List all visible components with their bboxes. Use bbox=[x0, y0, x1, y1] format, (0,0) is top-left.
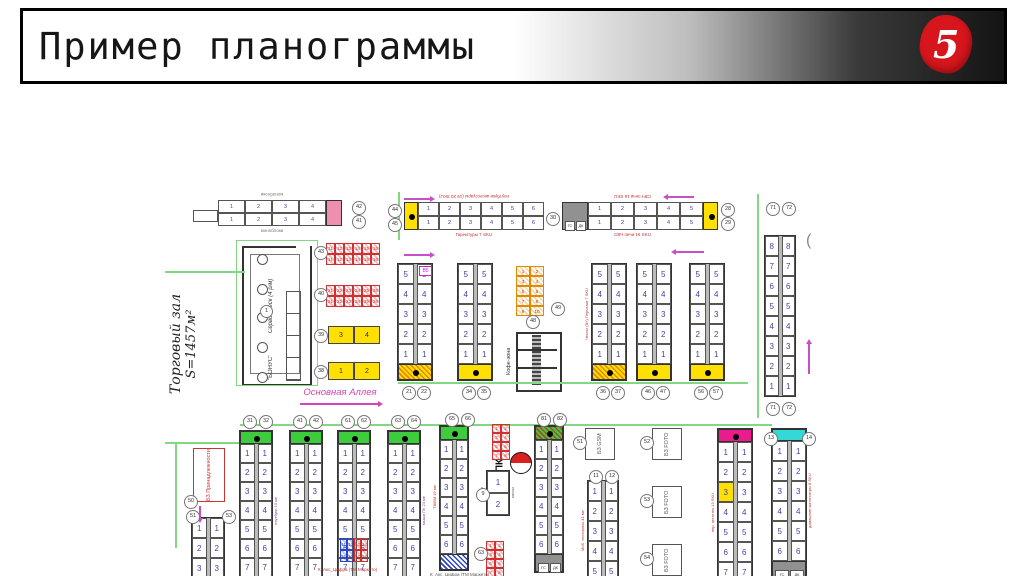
shelf-cell: 5 bbox=[718, 522, 734, 542]
section-badge: 36 bbox=[596, 386, 610, 400]
shelf-cell: 3 bbox=[535, 478, 548, 497]
shelf-cell: 2 bbox=[791, 461, 807, 481]
gondola-unit: 1122334455 bbox=[588, 481, 618, 576]
section-badge: 32 bbox=[259, 415, 273, 429]
shelf-cell: 6 bbox=[240, 539, 255, 558]
gondola-unit: 112233445566 bbox=[440, 426, 468, 570]
section-badge: 56 bbox=[694, 386, 708, 400]
shelf-cell: 6 bbox=[737, 542, 753, 562]
promo-cell: 13 bbox=[354, 538, 361, 550]
promo-cell: 3 bbox=[492, 433, 501, 442]
section-badge: 63 bbox=[391, 415, 405, 429]
shelf-cell: 1 bbox=[782, 376, 796, 396]
floor-name: Торговый зал bbox=[168, 284, 184, 404]
section-badge: 37 bbox=[611, 386, 625, 400]
shelf-cell: 4 bbox=[605, 541, 619, 561]
shelf-cell: 3 bbox=[406, 482, 421, 501]
flow-arrow bbox=[663, 194, 668, 200]
shelf-cell: 5 bbox=[308, 520, 323, 539]
promo-pallet-grid: 212223242526212223242526 bbox=[326, 285, 380, 307]
promo-cell: 1 bbox=[486, 541, 495, 550]
column-dot bbox=[705, 370, 711, 376]
boundary-line bbox=[398, 382, 748, 384]
section-badge: 54 bbox=[640, 552, 654, 566]
shelf-cell: 3 bbox=[272, 200, 299, 213]
flow-arrow bbox=[430, 196, 435, 202]
gsdk-cell: ДК bbox=[550, 563, 561, 573]
shelf-cell: 4 bbox=[709, 284, 725, 304]
gondola-spine bbox=[706, 264, 709, 364]
shelf-cell: 4 bbox=[290, 501, 305, 520]
shelf-cell: 6 bbox=[308, 539, 323, 558]
promo-table-cell: 1 bbox=[328, 362, 354, 380]
section-badge: 71 bbox=[766, 402, 780, 416]
end-block bbox=[388, 431, 420, 444]
shelf-cell: 3 bbox=[272, 213, 299, 226]
shelf-cell: 2 bbox=[535, 459, 548, 478]
annotation-text: ноутбуки 10 ме bbox=[273, 444, 280, 576]
flow-arrow bbox=[404, 198, 430, 200]
flow-arrow bbox=[430, 252, 435, 258]
section-badge: 28 bbox=[721, 203, 735, 217]
promo-cell: 14 bbox=[353, 243, 362, 254]
shelf-cell: 4 bbox=[657, 216, 680, 230]
gondola-unit: 5544332211B5 bbox=[398, 264, 432, 380]
shelf-cell: 2 bbox=[656, 324, 672, 344]
shelf-cell: 5 bbox=[240, 520, 255, 539]
shelf-cell: 2 bbox=[240, 463, 255, 482]
promo-cell: 24 bbox=[353, 285, 362, 296]
shelf-cell: 3 bbox=[634, 216, 657, 230]
promo-table-cell: 2 bbox=[354, 362, 380, 380]
flow-arrow bbox=[668, 196, 694, 198]
shelf-cell: 2 bbox=[772, 461, 788, 481]
section-badge: 43 bbox=[314, 246, 328, 260]
shelf-cell: 3 bbox=[791, 481, 807, 501]
annotation-text: ( bbox=[806, 232, 811, 250]
shelf-cell: 3 bbox=[611, 304, 627, 324]
shelf-cell: 3 bbox=[460, 216, 481, 230]
shelf-cell: 4 bbox=[611, 284, 627, 304]
shelf-cell: 7 bbox=[782, 256, 796, 276]
gondola-spine bbox=[305, 444, 308, 576]
gondola-unit: 112233 bbox=[192, 518, 224, 576]
shelf-cell: 7 bbox=[388, 558, 403, 576]
shelf-cell: 2 bbox=[258, 463, 273, 482]
section-badge: 35 bbox=[477, 386, 491, 400]
section-badge: 41 bbox=[352, 215, 366, 229]
flow-arrow bbox=[300, 403, 378, 405]
main-alley-label: Основная Аллея bbox=[298, 387, 382, 398]
section-badge: 42 bbox=[309, 415, 323, 429]
shelf-cell: 3 bbox=[477, 304, 493, 324]
annotation-text: мыши ПК 24 ме bbox=[421, 444, 428, 576]
outline-rect bbox=[236, 240, 318, 386]
column-dot bbox=[547, 431, 553, 437]
planogram-canvas: Торговый зал S=1457м² Основная Аллея Сер… bbox=[0, 86, 1024, 576]
shelf-cell: 5 bbox=[290, 520, 305, 539]
shelf-cell: 5 bbox=[605, 561, 619, 576]
gondola-unit: 11223344556677 bbox=[290, 431, 322, 576]
section-badge: 42 bbox=[352, 201, 366, 215]
shelf-cell: 1 bbox=[240, 444, 255, 463]
column-dot bbox=[402, 436, 408, 442]
gondola-spine bbox=[207, 518, 210, 576]
shelf-cell: 1 bbox=[690, 344, 706, 364]
shelf-cell: 2 bbox=[487, 493, 509, 515]
shelf-cell: 1 bbox=[456, 440, 469, 459]
promo-cell: 4 bbox=[530, 276, 544, 286]
boundary-line bbox=[165, 271, 245, 273]
b3-box: Б3 GSM bbox=[585, 428, 615, 460]
shelf-cell: 3 bbox=[737, 482, 753, 502]
gondola-unit: 112233445566ГСДК bbox=[535, 426, 563, 572]
shelf-cell: 5 bbox=[765, 296, 779, 316]
promo-cell: 4 bbox=[495, 550, 504, 559]
shelf-cell: 3 bbox=[772, 481, 788, 501]
section-badge: 65 bbox=[445, 413, 459, 427]
gondola-spine bbox=[414, 264, 417, 364]
gondola-unit: 5544332211 bbox=[690, 264, 724, 380]
shelf-cell: 4 bbox=[481, 216, 502, 230]
shelf-cell: 4 bbox=[338, 501, 353, 520]
shelf-cell: 2 bbox=[210, 538, 225, 558]
promo-cell: 2 bbox=[501, 424, 510, 433]
shelf-cell: 4 bbox=[458, 284, 474, 304]
section-badge: 62 bbox=[357, 415, 371, 429]
section-badge: 50 bbox=[184, 495, 198, 509]
shelf-cell: 4 bbox=[772, 501, 788, 521]
shelf-cell: 7 bbox=[406, 558, 421, 576]
b3-box-label: Б3 Принадлежности bbox=[194, 449, 224, 501]
section-badge: 61 bbox=[341, 415, 355, 429]
shelf-cell: 6 bbox=[535, 535, 548, 554]
b3-box: Б3 FOTO bbox=[652, 486, 682, 518]
section-badge: 57 bbox=[709, 386, 723, 400]
gsdk-cell: ДК bbox=[790, 570, 804, 576]
boundary-line bbox=[175, 442, 177, 548]
gsdk-cell: ГС bbox=[775, 570, 789, 576]
promo-cell: 7 bbox=[516, 296, 530, 306]
section-badge: 63 bbox=[474, 547, 488, 561]
promo-cell: 26 bbox=[371, 285, 380, 296]
shelf-cell: 4 bbox=[240, 501, 255, 520]
gondola-spine bbox=[548, 440, 551, 554]
shelf-cell: 2 bbox=[439, 202, 460, 216]
shelf-cell: 6 bbox=[406, 539, 421, 558]
end-block bbox=[440, 426, 468, 440]
shelf-cell: 2 bbox=[782, 356, 796, 376]
b3-box-label: Б3 GSM bbox=[586, 429, 614, 459]
shelf-cell: 2 bbox=[611, 202, 634, 216]
shelf-cell: 2 bbox=[308, 463, 323, 482]
shelf-cell: 3 bbox=[718, 482, 734, 502]
promo-table-cell: 4 bbox=[354, 326, 380, 344]
shelf-cell: 3 bbox=[634, 202, 657, 216]
section-badge: 13 bbox=[764, 432, 778, 446]
annotation-text: Моб. телефоны 41 ме bbox=[580, 481, 587, 576]
shelf-cell: 3 bbox=[709, 304, 725, 324]
promo-table-cell: 3 bbox=[328, 326, 354, 344]
promo-cell: 12 bbox=[335, 243, 344, 254]
shelf-cell: 4 bbox=[551, 497, 564, 516]
shelf-cell: 2 bbox=[245, 200, 272, 213]
shelf-cell: 4 bbox=[791, 501, 807, 521]
promo-cell: 11 bbox=[340, 538, 347, 550]
b3-box: Б3 FOTO bbox=[652, 428, 682, 460]
column-dot bbox=[254, 436, 260, 442]
shelf-cell: 2 bbox=[592, 324, 608, 344]
promo-cell: 7 bbox=[492, 451, 501, 460]
promo-cell: 8 bbox=[501, 451, 510, 460]
shelf-cell: 3 bbox=[388, 482, 403, 501]
shelf-cell: 4 bbox=[588, 541, 602, 561]
section-badge: 47 bbox=[656, 386, 670, 400]
shelf-cell: 6 bbox=[523, 202, 544, 216]
shelf-cell: 6 bbox=[388, 539, 403, 558]
shelf-cell: 3 bbox=[605, 521, 619, 541]
column-dot bbox=[352, 436, 358, 442]
shelf-cell: 2 bbox=[709, 324, 725, 344]
promo-cell: 12 bbox=[335, 254, 344, 265]
promo-cell: 22 bbox=[335, 285, 344, 296]
shelf-cell: 2 bbox=[690, 324, 706, 344]
gsdk-cell: ГС bbox=[538, 563, 549, 573]
section-badge: 34 bbox=[462, 386, 476, 400]
annotation-text: Чехлы (ВУ) Перчатки 7 SKU bbox=[584, 264, 591, 364]
shelf-cell: 5 bbox=[690, 264, 706, 284]
gondola-unit: 112233445566ГСДК bbox=[772, 429, 806, 576]
shelf-cell: 1 bbox=[588, 202, 611, 216]
end-block bbox=[458, 364, 492, 380]
promo-pallet-grid: 12345678 bbox=[492, 424, 510, 460]
shelf-run: 123456123456 bbox=[404, 202, 544, 230]
gsdk-cell: ГС bbox=[565, 221, 575, 231]
shelf-cell: 4 bbox=[299, 213, 326, 226]
shelf-cell: 2 bbox=[440, 459, 453, 478]
section-badge: 21 bbox=[402, 386, 416, 400]
section-badge: 82 bbox=[553, 413, 567, 427]
shelf-cell: 5 bbox=[535, 516, 548, 535]
shelf-cell: 2 bbox=[551, 459, 564, 478]
shelf-cell: 3 bbox=[356, 482, 371, 501]
shelf-cell: 4 bbox=[657, 202, 680, 216]
shelf-cell: 1 bbox=[718, 442, 734, 462]
shelf-cell: 2 bbox=[406, 463, 421, 482]
shelf-cell: 5 bbox=[737, 522, 753, 542]
shelf-cell: 6 bbox=[772, 541, 788, 561]
promo-pallet-grid: 111213141516111213141516 bbox=[326, 243, 380, 265]
end-block bbox=[535, 426, 563, 440]
section-badge: 53 bbox=[640, 494, 654, 508]
promo-cell: 18 bbox=[361, 550, 368, 562]
shelf-cell: 5 bbox=[680, 216, 703, 230]
promo-cell: 1 bbox=[492, 424, 501, 433]
end-block bbox=[690, 364, 724, 380]
coffee-zone-label: Кофе-зона bbox=[506, 336, 514, 386]
gsdk-cell: ДК bbox=[576, 221, 586, 231]
shelf-cell: 1 bbox=[592, 344, 608, 364]
shelf-cell: 1 bbox=[487, 471, 509, 493]
section-badge: 40 bbox=[314, 288, 328, 302]
shelf-cell: 4 bbox=[477, 284, 493, 304]
shelf-cell: 3 bbox=[398, 304, 414, 324]
promo-cell: 23 bbox=[344, 296, 353, 307]
shelf-cell: 2 bbox=[765, 356, 779, 376]
end-block bbox=[398, 364, 432, 380]
promo-cell: 23 bbox=[344, 285, 353, 296]
shelf-cell: 1 bbox=[417, 344, 433, 364]
section-badge: 12 bbox=[605, 470, 619, 484]
shelf-cell: 5 bbox=[398, 264, 414, 284]
shelf-cell: 4 bbox=[592, 284, 608, 304]
shelf-cell: 3 bbox=[210, 558, 225, 576]
promo-cell: 16 bbox=[371, 243, 380, 254]
shelf-cell: 5 bbox=[338, 520, 353, 539]
shelf-cell: 4 bbox=[737, 502, 753, 522]
end-block bbox=[240, 431, 272, 444]
shelf-cell: 3 bbox=[417, 304, 433, 324]
shelf-cell: 5 bbox=[551, 516, 564, 535]
shelf-cell: 4 bbox=[690, 284, 706, 304]
end-block bbox=[326, 200, 342, 226]
gondola-spine bbox=[734, 442, 737, 576]
shelf-cell: 7 bbox=[240, 558, 255, 576]
b3-box: Б3 FOTO bbox=[652, 544, 682, 576]
shelf-cell: 5 bbox=[388, 520, 403, 539]
shelf-cell: 1 bbox=[308, 444, 323, 463]
shelf-cell: 3 bbox=[458, 304, 474, 324]
shelf-cell: 1 bbox=[338, 444, 353, 463]
shelf-cell: 2 bbox=[588, 501, 602, 521]
shelf-cell: 2 bbox=[477, 324, 493, 344]
shelf-cell: 3 bbox=[588, 521, 602, 541]
gondola-unit: 11223344556677 bbox=[388, 431, 420, 576]
shelf-cell: 2 bbox=[439, 216, 460, 230]
shelf-cell: 7 bbox=[737, 562, 753, 576]
shelf-cell: 1 bbox=[406, 444, 421, 463]
shelf-cell: 2 bbox=[456, 459, 469, 478]
section-badge: 64 bbox=[407, 415, 421, 429]
shelf-cell: 4 bbox=[637, 284, 653, 304]
shelf-cell: 1 bbox=[440, 440, 453, 459]
outline-rect bbox=[193, 210, 218, 222]
promo-pallet-grid: 1112131415161718 bbox=[340, 538, 368, 562]
shelf-cell: 3 bbox=[456, 478, 469, 497]
b3-box-label: Б3 FOTO bbox=[653, 429, 681, 459]
shelf-cell: 2 bbox=[458, 324, 474, 344]
promo-cell: 6 bbox=[530, 286, 544, 296]
shelf-cell: 4 bbox=[782, 316, 796, 336]
gondola-unit: 8877665544332211 bbox=[765, 236, 795, 396]
section-badge: 48 bbox=[526, 315, 540, 329]
shelf-cell: 5 bbox=[611, 264, 627, 284]
promo-cell: 3 bbox=[516, 276, 530, 286]
section-badge: 31 bbox=[243, 415, 257, 429]
b3-box-label: Б3 FOTO bbox=[653, 545, 681, 575]
shelf-cell: 3 bbox=[308, 482, 323, 501]
shelf-cell: 5 bbox=[356, 520, 371, 539]
column-dot bbox=[652, 370, 658, 376]
shelf-cell: 2 bbox=[356, 463, 371, 482]
boundary-line bbox=[757, 194, 759, 418]
section-badge: 52 bbox=[640, 436, 654, 450]
shelf-cell: 1 bbox=[477, 344, 493, 364]
promo-table: 12 bbox=[328, 362, 380, 380]
end-block bbox=[440, 554, 468, 570]
shelf-cell: 5 bbox=[406, 520, 421, 539]
shelf-cell: 5 bbox=[637, 264, 653, 284]
shelf-cell: 3 bbox=[338, 482, 353, 501]
shelf-cell: 3 bbox=[440, 478, 453, 497]
end-block bbox=[718, 429, 752, 442]
shelf-cell: 4 bbox=[406, 501, 421, 520]
promo-cell: 22 bbox=[335, 296, 344, 307]
slide-header: Пример планограммы 5 bbox=[20, 8, 1007, 84]
shelf-cell: 4 bbox=[398, 284, 414, 304]
end-block: ГСДК bbox=[535, 554, 563, 572]
annotation-text: Гарнитуры 7 SKU bbox=[404, 232, 544, 237]
shelf-cell: 2 bbox=[737, 462, 753, 482]
shelf-cell: 1 bbox=[765, 376, 779, 396]
shelf-cell: 6 bbox=[523, 216, 544, 230]
shelf-cell: 6 bbox=[551, 535, 564, 554]
shelf-cell: 3 bbox=[690, 304, 706, 324]
shelf-cell: 6 bbox=[258, 539, 273, 558]
flow-arrow bbox=[806, 339, 812, 344]
shelf-cell: 6 bbox=[456, 535, 469, 554]
shelf-cell: 3 bbox=[592, 304, 608, 324]
shelf-cell: 1 bbox=[388, 444, 403, 463]
end-block bbox=[404, 202, 418, 230]
section-badge: 45 bbox=[388, 218, 402, 232]
end-block bbox=[290, 431, 322, 444]
section-badge: 11 bbox=[589, 470, 603, 484]
annotation-text: ТВ/ВМ 19 ме bbox=[432, 440, 439, 554]
b3-box-label: Б3 FOTO bbox=[653, 487, 681, 517]
shelf-cell: 4 bbox=[535, 497, 548, 516]
promo-cell: 12 bbox=[347, 538, 354, 550]
column-dot bbox=[452, 431, 458, 437]
section-badge: 46 bbox=[641, 386, 655, 400]
section-badge: 71 bbox=[766, 202, 780, 216]
gondola-unit: 11223344556677 bbox=[718, 429, 752, 576]
shelf-cell: 1 bbox=[458, 344, 474, 364]
section-badge: 9 bbox=[476, 488, 490, 502]
shelf-cell: 5 bbox=[782, 296, 796, 316]
shelf-run: 12341234 bbox=[218, 200, 342, 226]
shelf-cell: 2 bbox=[637, 324, 653, 344]
promo-cell: 24 bbox=[353, 296, 362, 307]
annotation-text: домашние кинотеатры 8 SKU bbox=[807, 441, 814, 561]
gondola-unit: 5544332211 bbox=[637, 264, 671, 380]
shelf-cell: 4 bbox=[656, 284, 672, 304]
shelf-cell: 1 bbox=[709, 344, 725, 364]
shelf-cell: 4 bbox=[299, 200, 326, 213]
coffee-divider bbox=[517, 349, 557, 351]
promo-cell: 2 bbox=[495, 541, 504, 550]
shelf-cell: 1 bbox=[398, 344, 414, 364]
slide: Пример планограммы 5 Торговый зал S=1457… bbox=[0, 0, 1024, 576]
shelf-cell: 2 bbox=[388, 463, 403, 482]
promo-cell: 17 bbox=[354, 550, 361, 562]
gondola-spine bbox=[653, 264, 656, 364]
column-dot bbox=[733, 434, 739, 440]
shelf-cell: 1 bbox=[656, 344, 672, 364]
section-badge: 44 bbox=[388, 204, 402, 218]
shelf-cell: 1 bbox=[551, 440, 564, 459]
gondola-unit: 5544332211 bbox=[458, 264, 492, 380]
